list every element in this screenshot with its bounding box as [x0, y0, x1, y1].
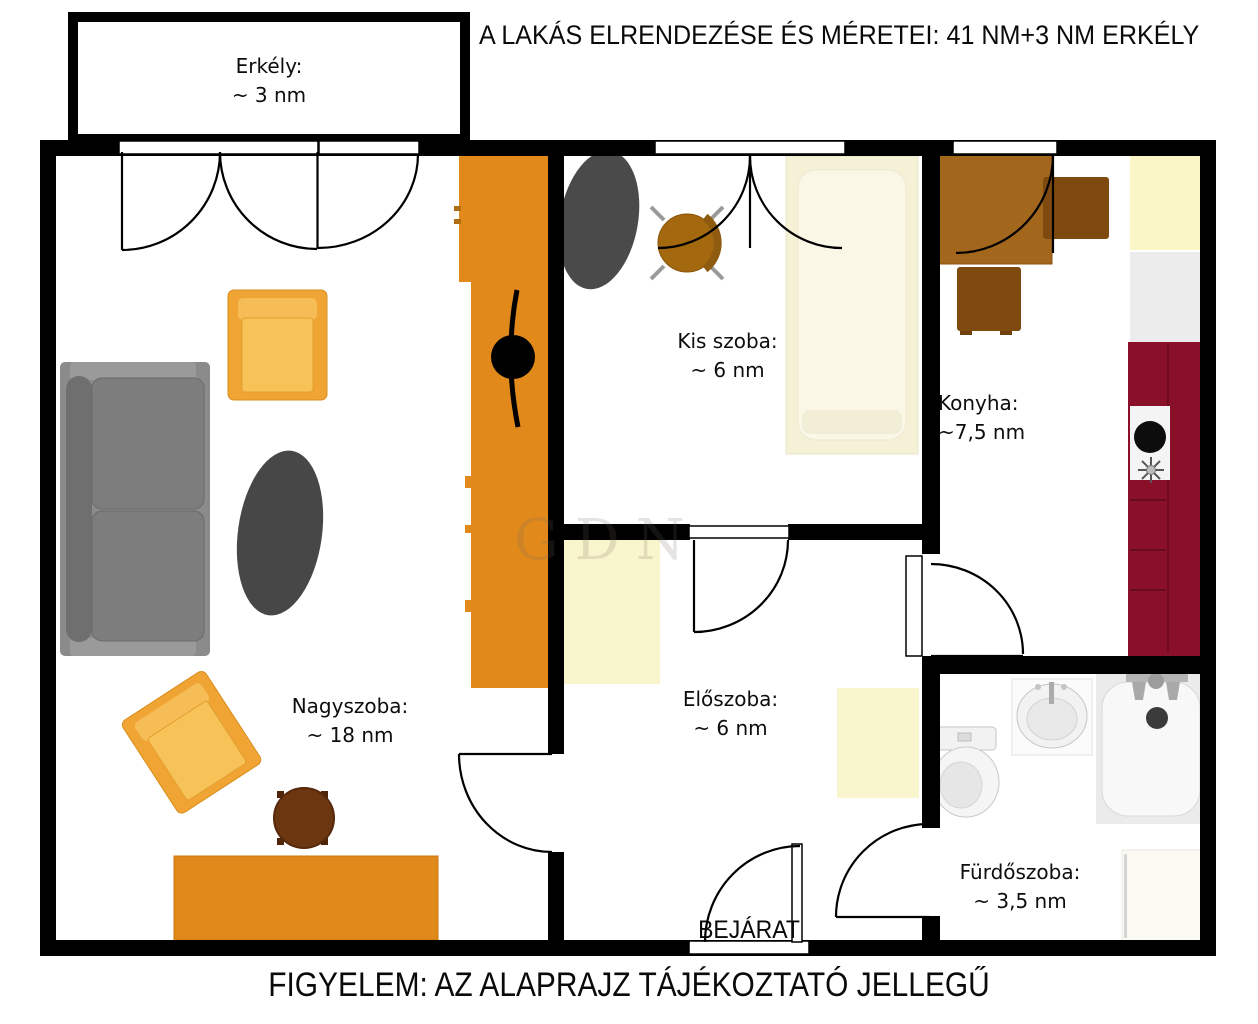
footer-warning: FIGYELEM: AZ ALAPRAJZ TÁJÉKOZTATÓ JELLEG… [75, 966, 1182, 1005]
bathroom-name: Fürdőszoba: [935, 858, 1105, 887]
kitchen-name: Konyha: [938, 389, 1068, 418]
sofa [60, 362, 210, 656]
bathroom-area: ~ 3,5 nm [935, 887, 1105, 916]
washing-machine [1122, 850, 1212, 942]
kitchen-counter [1128, 342, 1208, 656]
hall-area: ~ 6 nm [638, 714, 823, 743]
hall-label: Előszoba: ~ 6 nm [638, 685, 823, 743]
small-room-label: Kis szoba: ~ 6 nm [635, 327, 820, 385]
living-room-area: ~ 18 nm [250, 721, 450, 750]
entrance-label: BEJÁRAT [693, 916, 805, 945]
coffee-table [274, 788, 334, 848]
kitchen-chair-bottom [957, 267, 1021, 335]
kitchen-sink [1134, 421, 1166, 453]
bathtub [1096, 670, 1204, 824]
living-room-name: Nagyszoba: [250, 692, 450, 721]
living-room-label: Nagyszoba: ~ 18 nm [250, 692, 450, 750]
sideboard [174, 856, 438, 940]
balcony-area: ~ 3 nm [68, 81, 470, 110]
kitchen-area: ~7,5 nm [938, 418, 1068, 447]
hall-cabinet-left [564, 534, 660, 684]
rug [227, 445, 333, 621]
bathroom-label: Fürdőszoba: ~ 3,5 nm [935, 858, 1105, 916]
toilet [933, 727, 999, 817]
armchair [228, 290, 327, 400]
washbasin [1012, 679, 1092, 755]
small-room-area: ~ 6 nm [635, 356, 820, 385]
kitchen-label: Konyha: ~7,5 nm [938, 389, 1068, 447]
armchair-rotated [120, 669, 263, 815]
bed [786, 156, 918, 454]
wall-unit [454, 150, 553, 688]
floor-plan: A LAKÁS ELRENDEZÉSE ÉS MÉRETEI: 41 NM+3 … [0, 0, 1258, 1024]
small-room-name: Kis szoba: [635, 327, 820, 356]
fridge [1130, 252, 1206, 342]
balcony-label: Erkély: ~ 3 nm [68, 52, 470, 110]
balcony-name: Erkély: [68, 52, 470, 81]
hall-cabinet-right [837, 688, 919, 798]
kitchen-cabinet [1130, 152, 1204, 250]
hall-name: Előszoba: [638, 685, 823, 714]
page-title: A LAKÁS ELRENDEZÉSE ÉS MÉRETEI: 41 NM+3 … [479, 20, 1199, 51]
